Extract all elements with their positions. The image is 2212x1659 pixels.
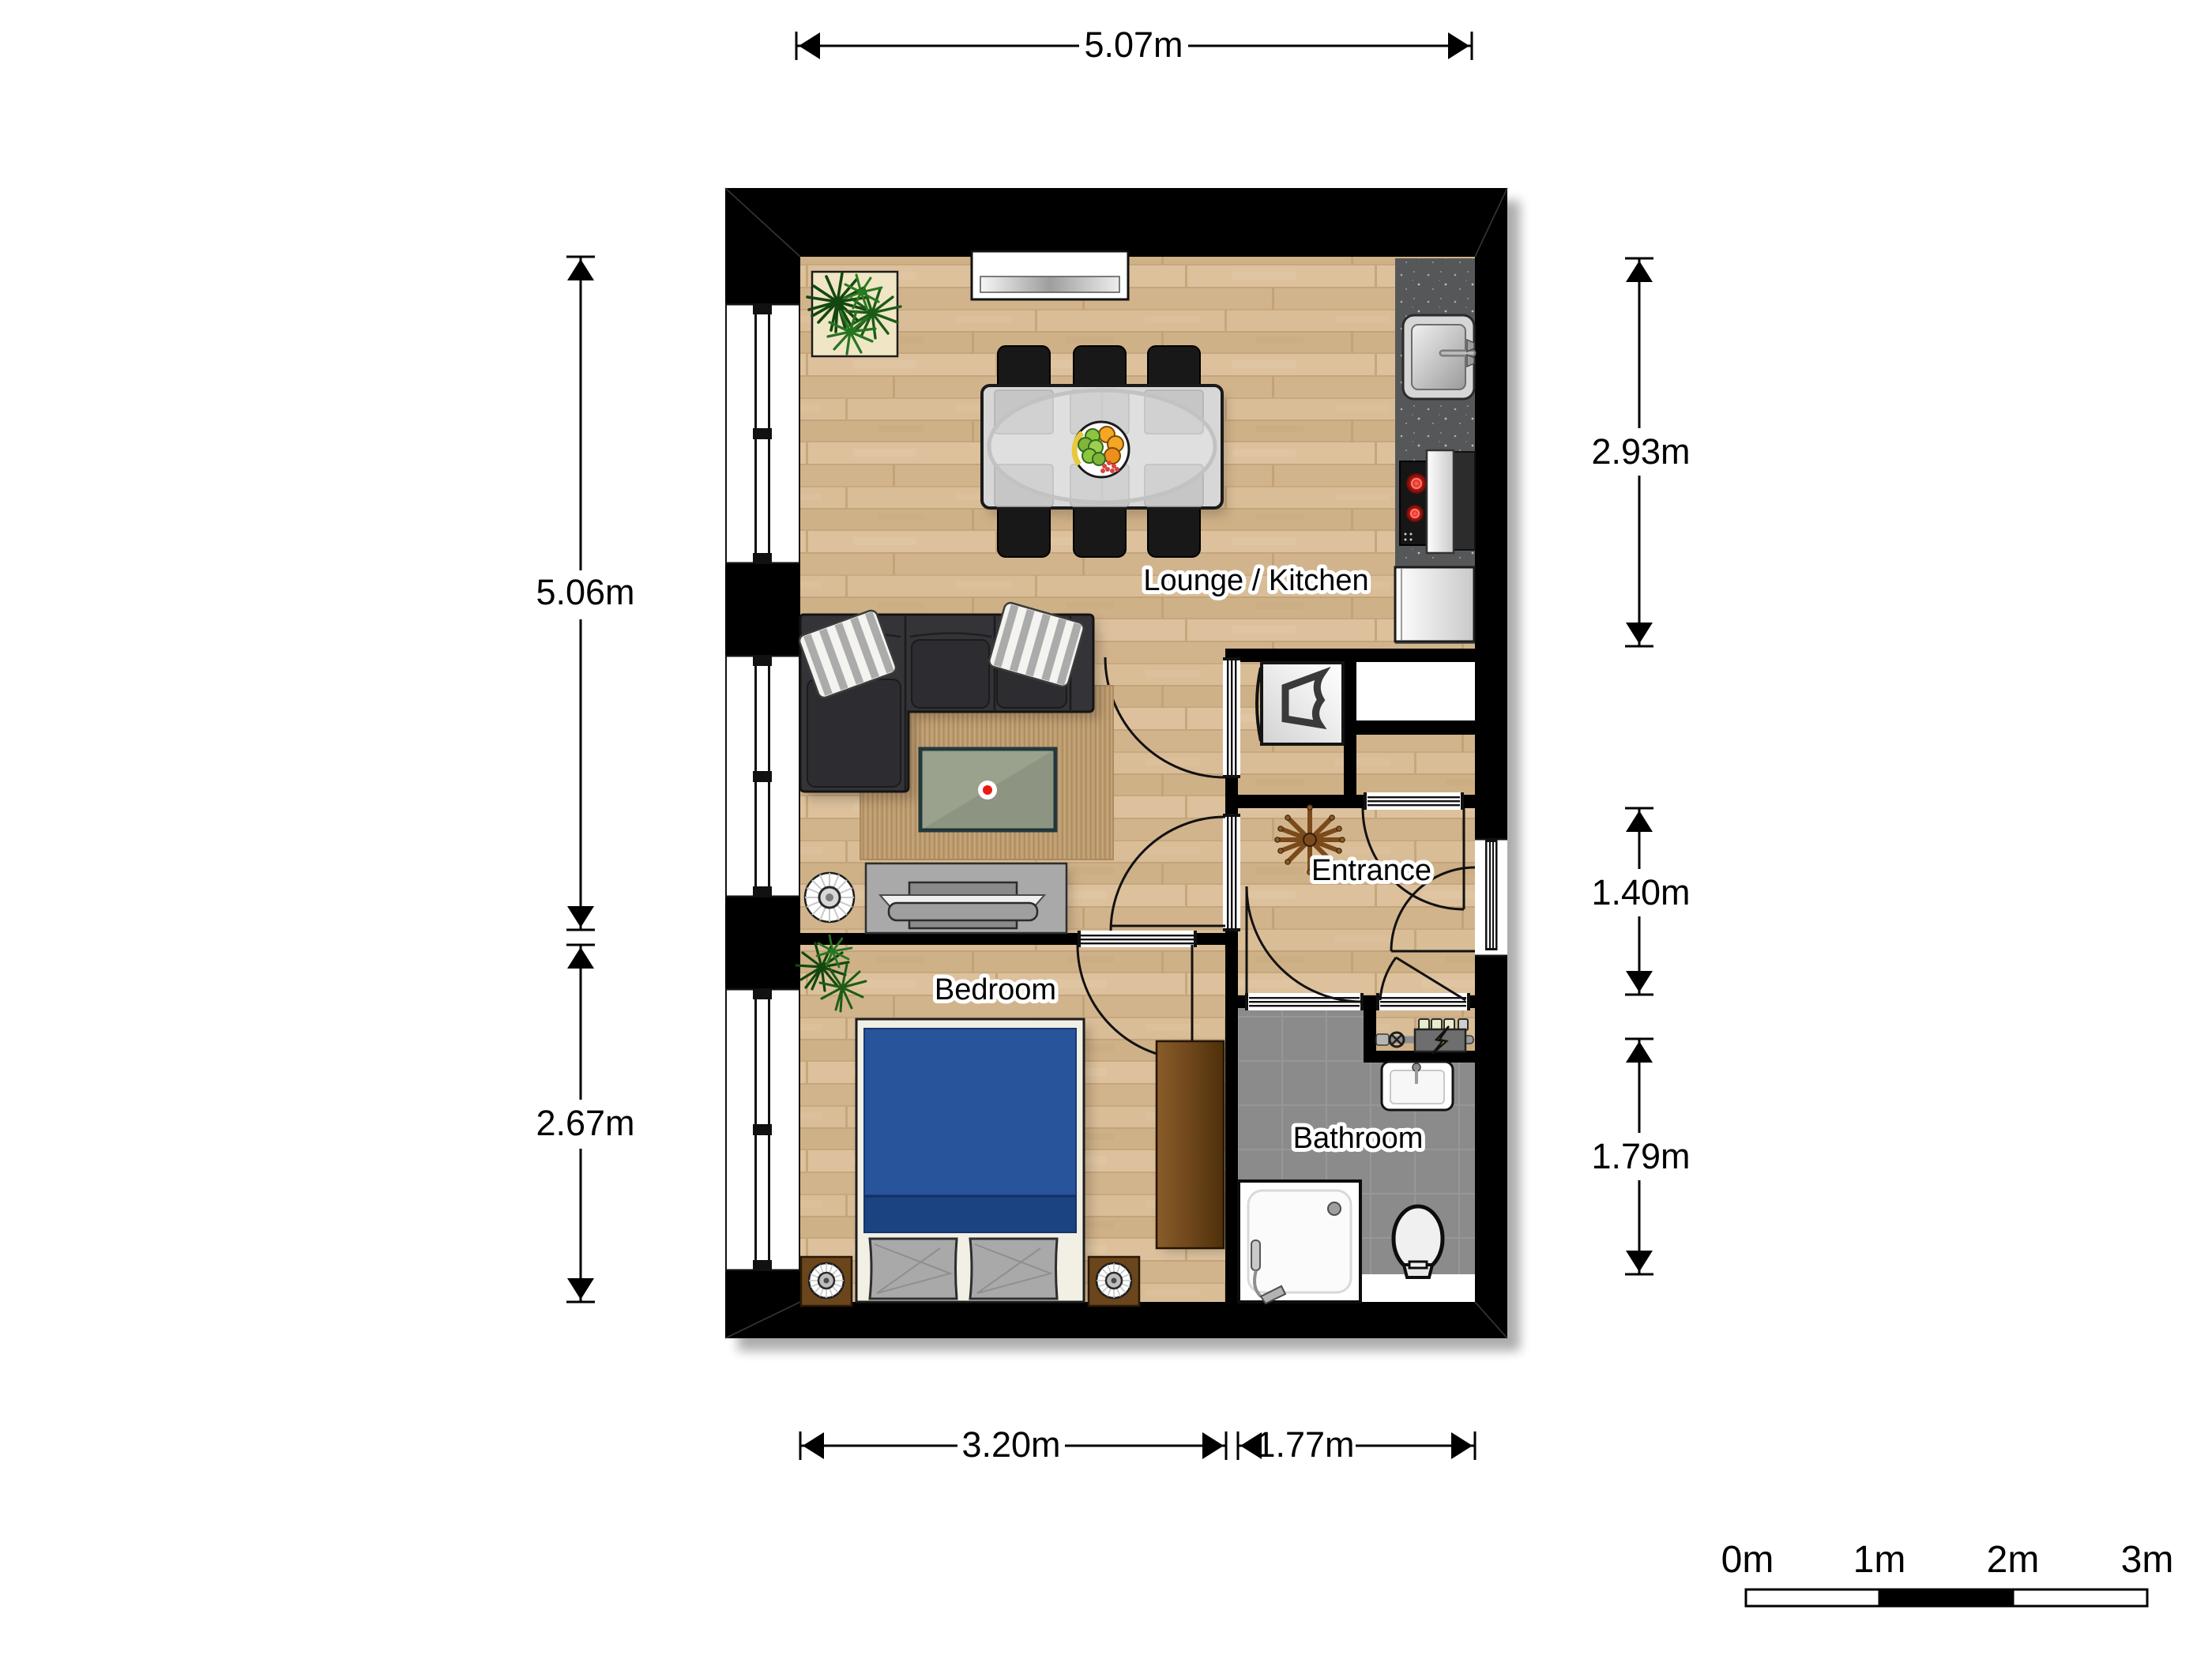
svg-text:5.06m: 5.06m xyxy=(536,572,634,612)
svg-text:2.67m: 2.67m xyxy=(536,1103,634,1143)
svg-text:3.20m: 3.20m xyxy=(961,1424,1060,1465)
svg-text:Lounge / Kitchen: Lounge / Kitchen xyxy=(1143,564,1368,597)
svg-text:2.93m: 2.93m xyxy=(1591,431,1690,472)
svg-text:2m: 2m xyxy=(1987,1539,2040,1581)
svg-text:Bathroom: Bathroom xyxy=(1293,1122,1424,1155)
svg-text:5.07m: 5.07m xyxy=(1084,24,1183,65)
svg-text:1.40m: 1.40m xyxy=(1591,872,1690,912)
svg-text:0m: 0m xyxy=(1721,1539,1774,1581)
svg-text:1.77m: 1.77m xyxy=(1255,1424,1354,1465)
svg-text:1.79m: 1.79m xyxy=(1591,1136,1690,1176)
svg-text:Entrance: Entrance xyxy=(1311,854,1431,887)
svg-text:1m: 1m xyxy=(1853,1539,1906,1581)
svg-text:Bedroom: Bedroom xyxy=(935,973,1056,1006)
svg-text:3m: 3m xyxy=(2121,1539,2174,1581)
